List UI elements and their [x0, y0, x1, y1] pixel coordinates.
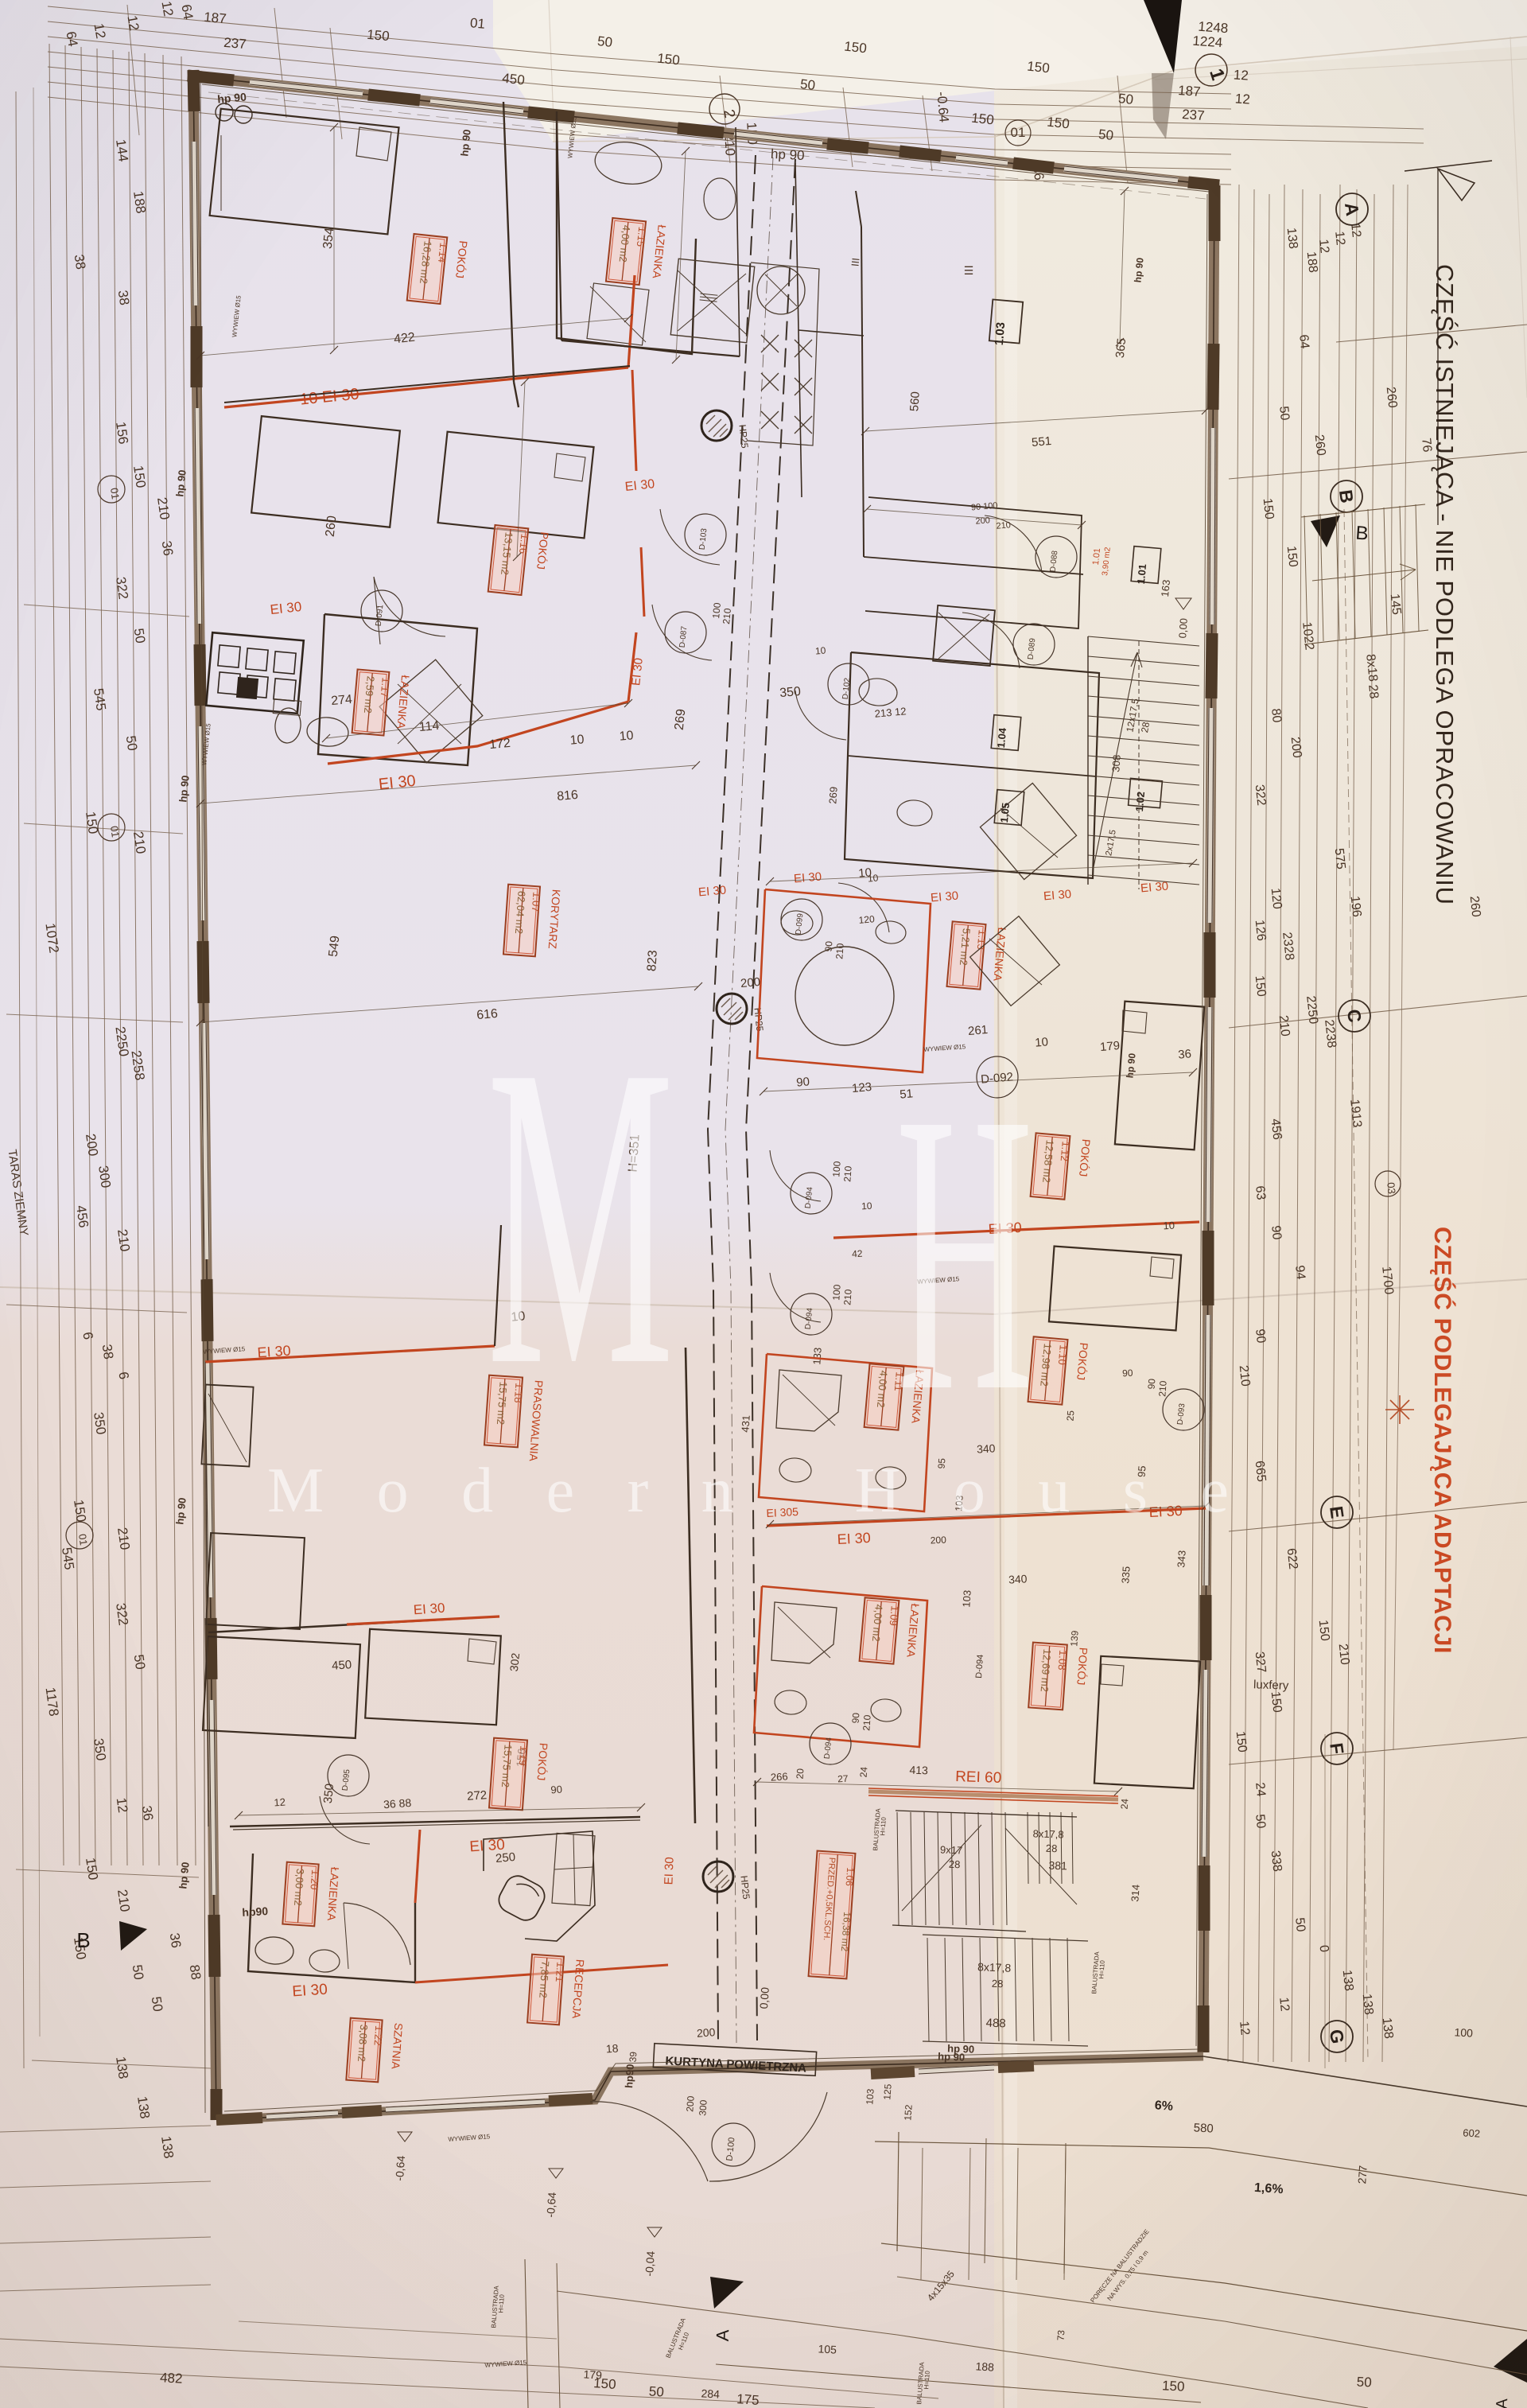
svg-text:150: 150 [1253, 974, 1269, 997]
svg-text:EI 30: EI 30 [930, 889, 958, 905]
svg-text:545: 545 [91, 687, 109, 712]
svg-text:1.07: 1.07 [530, 892, 543, 912]
svg-text:100: 100 [830, 1284, 842, 1301]
svg-text:12: 12 [124, 14, 142, 32]
svg-text:D-094: D-094 [974, 1654, 985, 1679]
svg-text:38: 38 [72, 254, 88, 270]
svg-text:172: 172 [489, 737, 511, 752]
svg-text:90: 90 [1253, 1328, 1268, 1344]
svg-text:10: 10 [861, 1200, 872, 1212]
svg-text:322: 322 [113, 1602, 131, 1627]
svg-text:179: 179 [583, 2367, 602, 2381]
svg-text:EI 30: EI 30 [629, 657, 646, 687]
svg-text:114: 114 [418, 719, 440, 734]
svg-text:50: 50 [799, 76, 816, 93]
svg-text:1.10: 1.10 [1056, 1344, 1070, 1366]
svg-text:237: 237 [223, 35, 247, 52]
svg-text:150: 150 [83, 1857, 101, 1881]
svg-text:103: 103 [864, 2088, 876, 2105]
svg-text:36 88: 36 88 [383, 1796, 412, 1811]
svg-text:150: 150 [1234, 1730, 1249, 1753]
svg-text:269: 269 [673, 708, 689, 730]
svg-text:210: 210 [154, 496, 173, 521]
svg-text:210: 210 [841, 1289, 853, 1305]
svg-text:EI 30: EI 30 [662, 1857, 676, 1885]
svg-text:50: 50 [1292, 1917, 1307, 1933]
svg-text:272: 272 [467, 1788, 488, 1803]
svg-text:64: 64 [1296, 334, 1311, 350]
svg-text:63: 63 [1253, 1185, 1268, 1201]
svg-text:EI 30: EI 30 [413, 1601, 445, 1618]
svg-text:28: 28 [992, 1978, 1004, 1990]
svg-text:138: 138 [158, 2135, 177, 2160]
svg-text:1.16: 1.16 [517, 533, 531, 554]
svg-text:A: A [1494, 2398, 1511, 2408]
svg-text:210: 210 [1156, 1380, 1168, 1397]
svg-text:EI 30: EI 30 [697, 884, 726, 900]
svg-text:152: 152 [902, 2104, 914, 2121]
svg-text:145: 145 [1388, 593, 1404, 615]
svg-text:150: 150 [367, 27, 390, 44]
svg-text:150: 150 [1046, 115, 1070, 132]
svg-text:1.19: 1.19 [517, 1745, 530, 1766]
svg-text:38: 38 [115, 290, 132, 306]
svg-text:EI 30: EI 30 [837, 1530, 871, 1547]
svg-text:144: 144 [113, 138, 131, 163]
svg-text:CZĘŚĆ PODLEGAJĄCA ADAPTACJI: CZĘŚĆ PODLEGAJĄCA ADAPTACJI [1429, 1227, 1456, 1654]
svg-text:126: 126 [1253, 919, 1269, 941]
svg-text:482: 482 [160, 2370, 183, 2386]
svg-text:138: 138 [1380, 2017, 1396, 2039]
svg-text:12: 12 [91, 22, 108, 40]
svg-text:1.01: 1.01 [1135, 563, 1148, 585]
svg-text:1.12: 1.12 [1059, 1141, 1072, 1162]
svg-text:150: 150 [656, 51, 680, 68]
svg-text:622: 622 [1284, 1547, 1300, 1570]
svg-text:36: 36 [167, 1932, 184, 1949]
svg-text:10: 10 [858, 866, 872, 880]
svg-text:CZĘŚĆ ISTNIEJĄCA - NIE PODLEGA: CZĘŚĆ ISTNIEJĄCA - NIE PODLEGA OPRACOWAN… [1431, 264, 1459, 905]
svg-text:200: 200 [1288, 736, 1304, 758]
svg-text:64: 64 [178, 3, 196, 21]
svg-text:188: 188 [1304, 251, 1320, 273]
svg-text:150: 150 [1261, 497, 1276, 519]
svg-text:210: 210 [115, 1228, 133, 1253]
svg-text:350: 350 [91, 1411, 109, 1436]
svg-text:150: 150 [1162, 2378, 1185, 2394]
svg-text:260: 260 [1384, 386, 1400, 408]
svg-text:1224: 1224 [1192, 33, 1223, 51]
svg-text:431: 431 [739, 1414, 752, 1433]
svg-text:123: 123 [851, 1080, 872, 1095]
svg-text:580: 580 [1193, 2121, 1214, 2135]
svg-text:0,00: 0,00 [1176, 618, 1190, 639]
svg-text:138: 138 [1360, 1993, 1376, 2015]
svg-text:39: 39 [628, 2051, 639, 2063]
svg-text:314: 314 [1129, 1884, 1141, 1902]
svg-text:EI 30: EI 30 [793, 870, 822, 886]
svg-text:28: 28 [949, 1858, 961, 1870]
svg-text:luxfery: luxfery [1253, 1678, 1289, 1693]
svg-text:1.22: 1.22 [371, 2025, 385, 2046]
svg-text:H=110: H=110 [879, 1816, 888, 1835]
svg-text:350: 350 [91, 1737, 109, 1762]
svg-text:187: 187 [1178, 83, 1202, 99]
svg-text:139: 139 [1068, 1630, 1080, 1647]
svg-text:12: 12 [1276, 1997, 1292, 2013]
svg-text:365: 365 [1113, 337, 1129, 359]
svg-text:hp90: hp90 [623, 2064, 636, 2088]
svg-text:50: 50 [1356, 2375, 1372, 2390]
svg-text:1.01: 1.01 [1091, 547, 1102, 566]
svg-text:179: 179 [1099, 1039, 1120, 1054]
svg-text:III: III [849, 257, 861, 266]
svg-text:188: 188 [975, 2359, 994, 2373]
svg-text:210: 210 [721, 608, 733, 625]
svg-text:88: 88 [187, 1964, 204, 1981]
svg-text:0: 0 [1317, 1944, 1331, 1953]
svg-text:18: 18 [605, 2041, 619, 2055]
svg-text:343: 343 [1175, 1550, 1187, 1568]
svg-text:456: 456 [1269, 1118, 1284, 1140]
svg-text:138: 138 [113, 2056, 131, 2080]
svg-text:150: 150 [130, 465, 149, 489]
svg-text:36: 36 [159, 540, 176, 557]
svg-text:210: 210 [996, 520, 1011, 531]
svg-text:237: 237 [1182, 107, 1206, 123]
svg-text:H: H [896, 1031, 1033, 1475]
svg-text:hp 90: hp 90 [771, 146, 805, 163]
svg-text:266: 266 [771, 1770, 788, 1783]
svg-text:12: 12 [1234, 91, 1250, 107]
svg-text:9x17: 9x17 [940, 1844, 963, 1857]
svg-text:210: 210 [1237, 1364, 1253, 1387]
svg-text:150: 150 [71, 1499, 89, 1523]
svg-text:338: 338 [1269, 1850, 1284, 1872]
svg-text:6%: 6% [1154, 2099, 1173, 2114]
svg-text:163: 163 [1159, 579, 1172, 597]
svg-text:36: 36 [1178, 1047, 1192, 1061]
svg-text:1.03: 1.03 [993, 321, 1008, 346]
svg-text:120: 120 [858, 913, 875, 926]
svg-text:50: 50 [130, 1964, 146, 1981]
svg-text:210: 210 [130, 831, 149, 855]
svg-text:450: 450 [332, 1658, 352, 1673]
svg-text:8x17,8: 8x17,8 [977, 1960, 1012, 1974]
svg-text:575: 575 [1332, 847, 1348, 869]
svg-text:hp 90: hp 90 [217, 90, 247, 105]
svg-text:300: 300 [697, 2099, 709, 2116]
svg-text:28: 28 [1139, 721, 1152, 733]
svg-text:1.20: 1.20 [308, 1869, 321, 1890]
svg-text:-0.64: -0.64 [934, 91, 951, 123]
svg-text:260: 260 [1312, 434, 1328, 456]
svg-text:340: 340 [1008, 1572, 1028, 1585]
svg-text:274: 274 [331, 693, 353, 708]
svg-text:90: 90 [1146, 1378, 1158, 1390]
svg-text:REI 60: REI 60 [955, 1768, 1002, 1787]
svg-text:28: 28 [1366, 684, 1381, 700]
svg-text:210: 210 [841, 1165, 853, 1182]
svg-text:450: 450 [501, 71, 525, 88]
svg-text:-0,64: -0,64 [393, 2155, 407, 2181]
svg-text:50: 50 [149, 1996, 165, 2013]
svg-text:12: 12 [1233, 67, 1249, 83]
svg-text:90: 90 [550, 1784, 562, 1796]
svg-text:133: 133 [810, 1347, 823, 1365]
svg-text:260: 260 [1467, 895, 1483, 917]
svg-text:-0,04: -0,04 [643, 2250, 657, 2277]
svg-text:150: 150 [843, 39, 867, 56]
svg-text:210: 210 [115, 1527, 133, 1551]
svg-text:0,00: 0,00 [757, 1986, 771, 2009]
svg-text:1.08: 1.08 [1056, 1650, 1070, 1671]
svg-text:188: 188 [130, 190, 149, 215]
svg-text:551: 551 [1031, 434, 1051, 449]
svg-text:210: 210 [1276, 1014, 1292, 1037]
svg-text:1.17: 1.17 [379, 677, 392, 698]
svg-text:50: 50 [123, 735, 140, 752]
svg-text:322: 322 [1253, 784, 1269, 806]
svg-text:20: 20 [795, 1768, 806, 1780]
svg-text:150: 150 [970, 111, 994, 128]
svg-text:100: 100 [830, 1161, 842, 1177]
svg-text:210: 210 [833, 943, 845, 959]
svg-text:POKÓJ: POKÓJ [535, 1742, 550, 1780]
svg-text:302: 302 [507, 1652, 522, 1672]
svg-text:150: 150 [1284, 545, 1300, 567]
svg-text:105: 105 [818, 2342, 837, 2355]
svg-text:125: 125 [881, 2083, 893, 2100]
svg-text:322: 322 [113, 576, 131, 601]
svg-text:549: 549 [327, 935, 343, 957]
svg-text:hp90: hp90 [242, 1904, 269, 1919]
svg-text:36: 36 [139, 1805, 156, 1822]
svg-text:G: G [1326, 2028, 1348, 2044]
svg-text:200: 200 [696, 2025, 716, 2040]
svg-text:50: 50 [131, 1654, 148, 1671]
svg-text:1.05: 1.05 [998, 802, 1012, 823]
svg-text:B: B [1355, 522, 1370, 544]
svg-text:381: 381 [1048, 1859, 1067, 1873]
svg-text:138: 138 [1340, 1969, 1356, 1991]
svg-text:12: 12 [158, 0, 176, 18]
svg-text:H=110: H=110 [497, 2293, 506, 2313]
svg-text:80: 80 [1269, 708, 1284, 724]
svg-text:277: 277 [1355, 2165, 1370, 2184]
svg-text:196: 196 [1348, 895, 1364, 917]
svg-text:24: 24 [858, 1766, 870, 1778]
svg-text:24: 24 [1119, 1798, 1131, 1810]
svg-text:25: 25 [1065, 1410, 1077, 1422]
svg-text:H=110: H=110 [923, 2370, 931, 2389]
svg-text:38: 38 [99, 1344, 116, 1360]
svg-text:10: 10 [619, 729, 634, 743]
svg-text:327: 327 [1253, 1651, 1269, 1673]
svg-text:150: 150 [1316, 1619, 1332, 1641]
svg-text:10: 10 [1163, 1220, 1175, 1232]
svg-text:50: 50 [1117, 91, 1134, 107]
svg-text:200: 200 [684, 2095, 696, 2112]
svg-text:50: 50 [1276, 406, 1292, 422]
svg-text:01: 01 [1011, 125, 1026, 140]
svg-text:94: 94 [1292, 1265, 1307, 1281]
svg-text:200: 200 [740, 975, 760, 990]
svg-text:10: 10 [1035, 1035, 1049, 1049]
svg-text:24: 24 [1253, 1782, 1268, 1798]
svg-text:10: 10 [814, 644, 826, 656]
svg-text:50: 50 [131, 628, 148, 644]
svg-text:816: 816 [557, 788, 579, 803]
svg-text:300: 300 [95, 1165, 114, 1189]
svg-text:27: 27 [837, 1773, 849, 1785]
svg-text:335: 335 [1119, 1566, 1132, 1584]
svg-text:12: 12 [1316, 239, 1331, 255]
svg-text:1.14: 1.14 [436, 242, 450, 263]
svg-text:EI 30: EI 30 [292, 1981, 328, 2000]
svg-text:hp 90: hp 90 [938, 2050, 965, 2063]
svg-text:120: 120 [1269, 887, 1284, 909]
svg-text:602: 602 [1463, 2126, 1480, 2139]
svg-text:1.21: 1.21 [554, 1962, 567, 1982]
svg-text:12: 12 [1237, 2021, 1252, 2036]
svg-text:350: 350 [779, 685, 802, 700]
svg-text:01: 01 [108, 487, 122, 500]
svg-text:01: 01 [76, 1533, 90, 1546]
svg-text:EI 30: EI 30 [257, 1343, 291, 1361]
svg-text:1.02: 1.02 [1133, 791, 1147, 812]
svg-text:175: 175 [736, 2391, 760, 2408]
svg-text:488: 488 [985, 2017, 1006, 2031]
svg-text:1,6%: 1,6% [1254, 2181, 1284, 2197]
svg-text:823: 823 [645, 950, 660, 972]
svg-text:269: 269 [826, 786, 839, 804]
svg-text:284: 284 [701, 2387, 720, 2400]
svg-text:545: 545 [59, 1546, 77, 1571]
svg-text:1.06: 1.06 [844, 1867, 857, 1887]
svg-text:☰: ☰ [964, 264, 974, 277]
svg-text:M: M [487, 977, 674, 1455]
svg-text:150: 150 [1269, 1690, 1284, 1713]
svg-text:42: 42 [852, 1248, 863, 1260]
svg-text:POKÓJ: POKÓJ [1074, 1647, 1090, 1685]
svg-text:350: 350 [321, 1783, 337, 1804]
svg-text:210: 210 [1336, 1643, 1352, 1665]
svg-text:1.04: 1.04 [995, 727, 1008, 749]
svg-text:A: A [713, 2329, 733, 2342]
svg-text:50: 50 [1098, 126, 1114, 143]
svg-text:200: 200 [83, 1133, 101, 1157]
svg-text:100: 100 [1454, 2025, 1473, 2039]
svg-text:-0,64: -0,64 [544, 2192, 558, 2218]
svg-text:665: 665 [1253, 1460, 1269, 1482]
svg-text:90: 90 [1122, 1367, 1133, 1379]
svg-text:EI 30: EI 30 [1043, 888, 1071, 904]
svg-text:8x17,8: 8x17,8 [1032, 1827, 1064, 1840]
svg-text:187: 187 [204, 10, 227, 26]
svg-text:138: 138 [134, 2095, 153, 2120]
svg-text:B: B [76, 1928, 90, 1952]
svg-text:456: 456 [73, 1204, 91, 1229]
svg-text:12: 12 [274, 1796, 286, 1809]
svg-text:12: 12 [1332, 231, 1347, 247]
svg-text:90: 90 [850, 1712, 862, 1724]
svg-text:1.09: 1.09 [888, 1605, 901, 1627]
svg-text:200: 200 [930, 1534, 946, 1546]
svg-text:8x18: 8x18 [1363, 653, 1380, 682]
svg-text:10: 10 [569, 733, 585, 747]
svg-text:H=110: H=110 [1098, 1959, 1106, 1978]
svg-text:64: 64 [63, 30, 80, 48]
svg-text:50: 50 [648, 2383, 664, 2399]
svg-text:90: 90 [1269, 1225, 1284, 1241]
svg-text:103: 103 [960, 1589, 973, 1608]
svg-text:210: 210 [861, 1714, 872, 1731]
svg-text:210: 210 [115, 1889, 133, 1913]
svg-text:138: 138 [1284, 227, 1300, 249]
svg-text:73: 73 [1055, 2329, 1067, 2341]
svg-text:150: 150 [1026, 59, 1050, 76]
svg-text:03: 03 [1385, 1182, 1397, 1195]
svg-text:EI 30: EI 30 [1140, 880, 1168, 896]
svg-text:50: 50 [1253, 1814, 1268, 1830]
svg-text:01: 01 [108, 825, 122, 838]
svg-text:560: 560 [907, 391, 923, 412]
svg-text:01: 01 [469, 15, 486, 32]
svg-text:1.15: 1.15 [635, 226, 649, 247]
svg-text:250: 250 [495, 1850, 515, 1865]
svg-text:50: 50 [596, 33, 613, 50]
svg-text:156: 156 [113, 421, 131, 445]
svg-text:90: 90 [796, 1075, 810, 1089]
svg-text:260: 260 [324, 515, 340, 537]
svg-text:12: 12 [114, 1797, 130, 1814]
svg-text:28: 28 [1046, 1842, 1058, 1854]
svg-text:413: 413 [909, 1764, 928, 1777]
